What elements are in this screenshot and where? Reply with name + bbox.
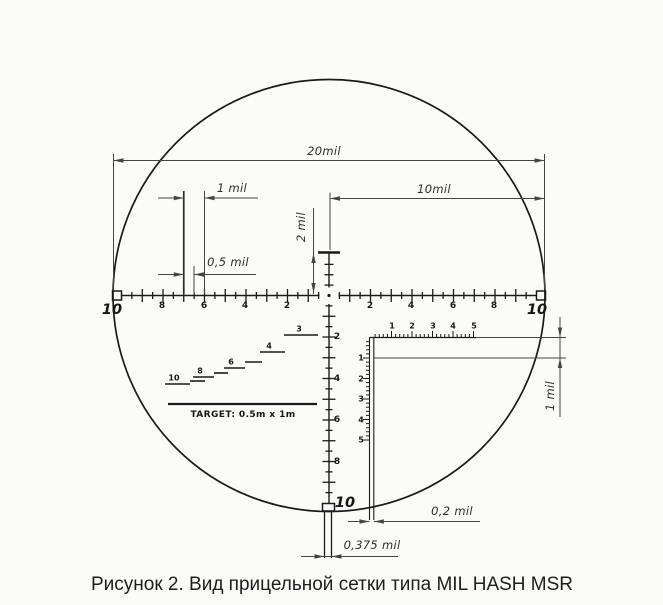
fine-scale-h-label: 5 bbox=[471, 322, 477, 331]
axis-label-left: 2 bbox=[284, 301, 290, 311]
fine-scale-h-label: 4 bbox=[450, 322, 456, 331]
dim-label-2mil: 2 mil bbox=[294, 212, 308, 242]
dim-label-1mil-right: 1 mil bbox=[543, 381, 557, 411]
stair-label: 3 bbox=[296, 325, 302, 334]
reticle-diagram: 8 6 4 2 2 4 6 8 2 4 6 8 10 10 10 1 2 3 4… bbox=[0, 0, 663, 605]
fine-scale-h-label: 2 bbox=[409, 322, 415, 331]
axis-label-down: 4 bbox=[334, 374, 340, 384]
dim-label-05mil: 0,5 mil bbox=[207, 255, 249, 269]
target-size-label: TARGET: 0.5m x 1m bbox=[190, 410, 295, 420]
fine-scale-h-label: 1 bbox=[389, 322, 395, 331]
axis-label-left: 6 bbox=[201, 301, 207, 311]
axis-label-left: 8 bbox=[159, 301, 165, 311]
fine-scale-v-label: 5 bbox=[358, 436, 364, 445]
fine-scale-v-label: 3 bbox=[358, 395, 364, 404]
rangefinder-stairs bbox=[165, 335, 318, 404]
stair-label: 6 bbox=[228, 358, 234, 367]
fine-scale-h-label: 3 bbox=[430, 322, 436, 331]
stair-label: 10 bbox=[168, 374, 179, 383]
dim-label-10mil: 10mil bbox=[417, 182, 451, 196]
reticle-drawing bbox=[0, 0, 663, 605]
axis-label-down: 6 bbox=[334, 415, 340, 425]
dim-label-20mil: 20mil bbox=[307, 144, 341, 158]
axis-label-right: 2 bbox=[367, 301, 373, 311]
fine-scale-v-label: 4 bbox=[358, 416, 364, 425]
fine-scale-v-label: 1 bbox=[358, 354, 364, 363]
stair-label: 8 bbox=[197, 367, 203, 376]
fine-scale-v-label: 2 bbox=[358, 375, 364, 384]
edge-label-bottom-10: 10 bbox=[335, 495, 355, 511]
axis-label-down: 2 bbox=[334, 332, 340, 342]
dim-label-1mil-top: 1 mil bbox=[217, 181, 247, 195]
dim-label-02mil: 0,2 mil bbox=[431, 504, 473, 518]
edge-label-left-10: 10 bbox=[102, 302, 122, 318]
axis-label-left: 4 bbox=[242, 301, 248, 311]
axis-label-right: 4 bbox=[408, 301, 414, 311]
axis-label-down: 8 bbox=[334, 457, 340, 467]
axis-label-right: 6 bbox=[450, 301, 456, 311]
edge-label-right-10: 10 bbox=[527, 302, 547, 318]
figure-caption: Рисунок 2. Вид прицельной сетки типа MIL… bbox=[91, 574, 573, 596]
dim-label-0375mil: 0,375 mil bbox=[344, 538, 401, 552]
stair-label: 4 bbox=[266, 342, 272, 351]
axis-label-right: 8 bbox=[491, 301, 497, 311]
